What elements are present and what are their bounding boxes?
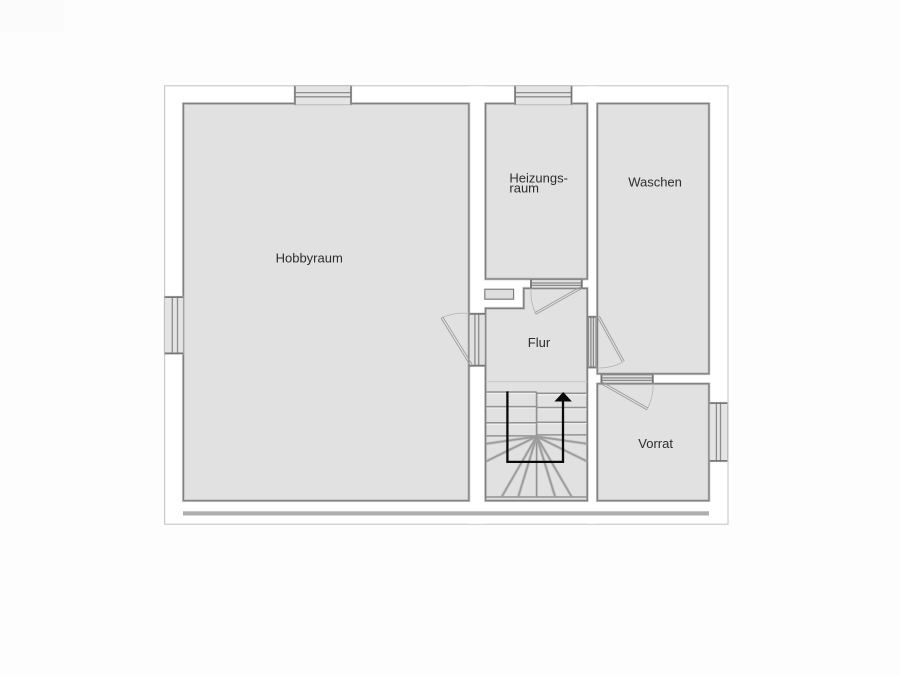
svg-text:Flur: Flur (528, 335, 551, 350)
svg-text:raum: raum (509, 181, 539, 196)
svg-text:Hobbyraum: Hobbyraum (276, 251, 343, 266)
svg-text:Waschen: Waschen (628, 175, 682, 190)
svg-text:Vorrat: Vorrat (638, 436, 673, 451)
